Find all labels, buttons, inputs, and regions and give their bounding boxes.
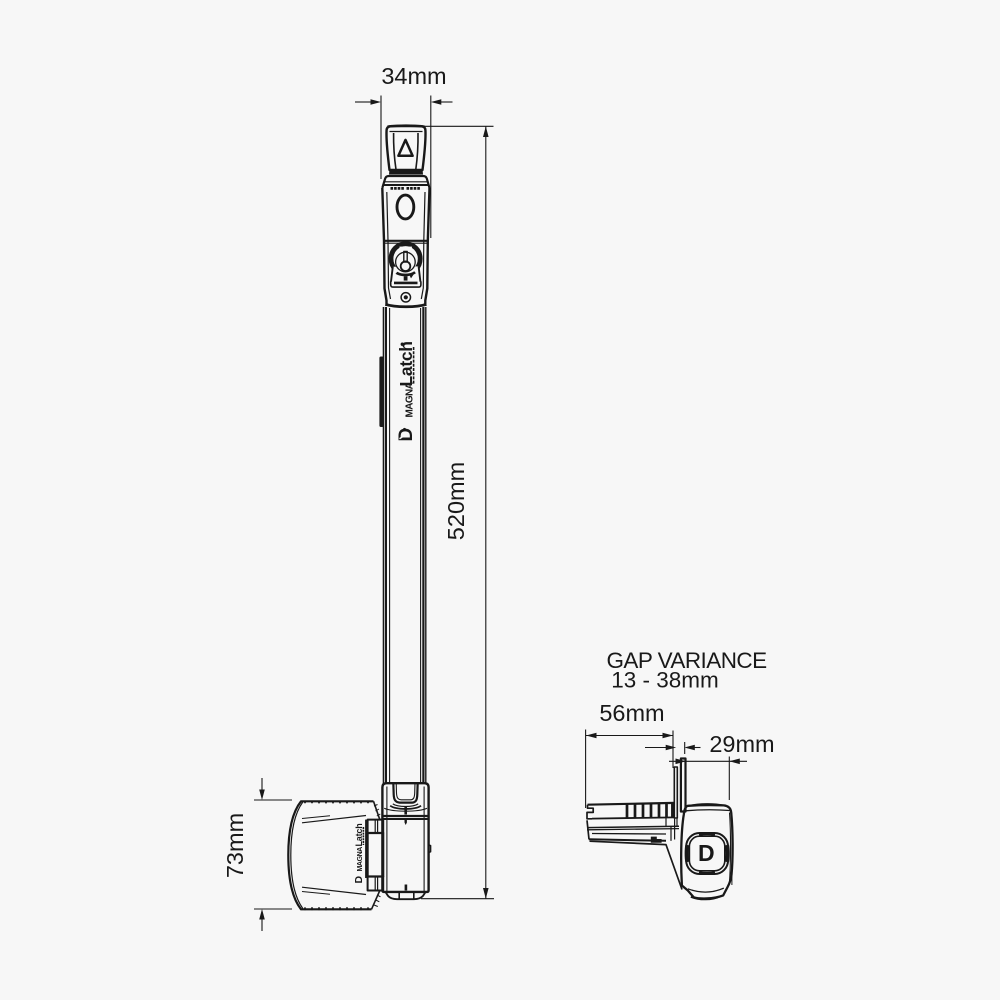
svg-text:29mm: 29mm	[709, 731, 774, 757]
svg-text:520mm: 520mm	[443, 462, 469, 540]
svg-text:73mm: 73mm	[222, 813, 248, 878]
svg-text:Latch: Latch	[354, 823, 364, 846]
svg-text:56mm: 56mm	[599, 700, 664, 726]
svg-text:34mm: 34mm	[381, 63, 446, 89]
svg-text:D: D	[353, 876, 365, 884]
svg-text:D: D	[698, 840, 715, 866]
svg-text:Latch: Latch	[396, 341, 416, 386]
svg-text:MAGNA: MAGNA	[404, 382, 415, 417]
svg-text:MAGNA: MAGNA	[357, 847, 364, 872]
svg-text:13 - 38mm: 13 - 38mm	[611, 668, 719, 693]
